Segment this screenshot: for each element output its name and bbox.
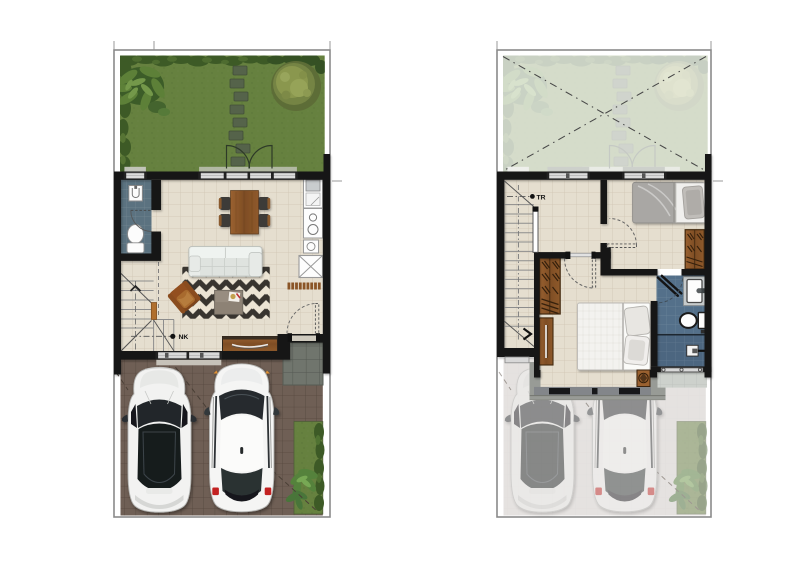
svg-text:NK: NK (179, 334, 189, 341)
svg-text:TR: TR (537, 194, 546, 201)
